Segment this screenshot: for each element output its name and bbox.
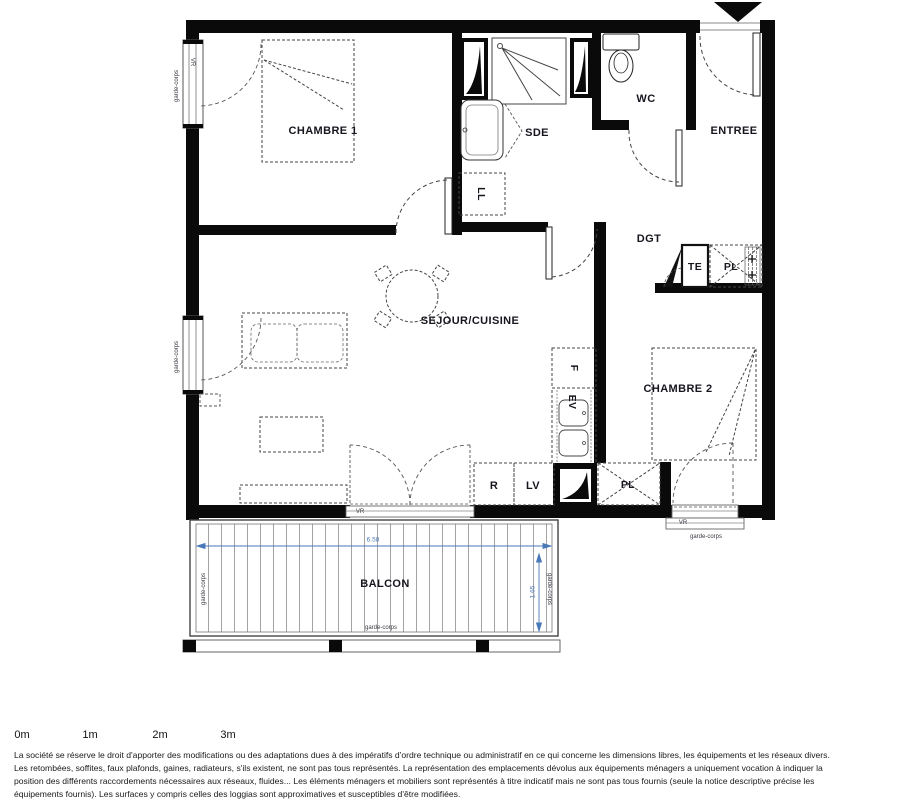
scale-label-1m: 1m bbox=[82, 729, 97, 741]
sde-door bbox=[546, 227, 597, 279]
kitchen-duct-box bbox=[553, 463, 597, 507]
garde-corps-label-balcony-left: garde-corps bbox=[201, 573, 207, 605]
room-label-sde: SDE bbox=[525, 127, 549, 139]
chambre1-window bbox=[183, 40, 261, 128]
disclaimer-line-2: Les retombées, soffites, faux plafonds, … bbox=[14, 762, 823, 775]
chambre1-bed bbox=[262, 40, 354, 162]
garde-corps-label-balcony-bottom: garde-corps bbox=[365, 625, 397, 631]
duct-box-left bbox=[460, 38, 488, 100]
shower bbox=[492, 38, 566, 104]
fixture-label-fridge: F bbox=[568, 365, 580, 372]
garde-corps-label-chambre1: garde-corps bbox=[174, 70, 180, 102]
chambre2-window bbox=[666, 505, 744, 529]
garde-corps-label-sejour: garde-corps bbox=[174, 341, 180, 373]
room-label-wc: WC bbox=[636, 93, 655, 105]
fixture-label-r: R bbox=[490, 480, 498, 492]
balcony-depth-dimension: 1.65 bbox=[530, 586, 537, 599]
disclaimer-line-4: équipements fournis). Les surfaces y com… bbox=[14, 788, 460, 800]
room-label-chambre1: CHAMBRE 1 bbox=[289, 125, 358, 137]
fixture-label-te: TE bbox=[688, 261, 702, 273]
duct-box-right bbox=[570, 38, 592, 98]
room-label-dgt: DGT bbox=[637, 233, 661, 245]
disclaimer-line-3: position des différents raccordements né… bbox=[14, 775, 814, 788]
wc-door bbox=[629, 130, 682, 186]
vr-label-chambre1-window: VR bbox=[189, 58, 195, 66]
fixture-label-pl-upper: PL bbox=[724, 261, 738, 273]
fixture-label-lv: LV bbox=[526, 480, 540, 492]
room-label-chambre2: CHAMBRE 2 bbox=[644, 383, 713, 395]
sejour-window bbox=[183, 316, 261, 406]
french-door bbox=[346, 445, 474, 517]
garde-corps-label-balcony-right: garde-corps bbox=[546, 573, 552, 605]
vr-label-sejour-door: VR bbox=[356, 509, 364, 515]
room-label-entree: ENTREE bbox=[710, 125, 757, 137]
chambre2-bed bbox=[652, 348, 756, 460]
sofa bbox=[242, 313, 347, 368]
scale-label-0m: 0m bbox=[14, 729, 29, 741]
fixture-label-sink: EV bbox=[566, 395, 578, 410]
entrance-door bbox=[700, 23, 760, 96]
garde-corps-label-chambre2: garde-corps bbox=[690, 534, 722, 540]
technical-strip bbox=[745, 247, 760, 285]
chambre1-door bbox=[396, 178, 452, 234]
coffee-table bbox=[260, 417, 323, 452]
washbasin bbox=[461, 100, 522, 160]
fixture-label-pl-lower: PL bbox=[621, 479, 635, 491]
tv-bench bbox=[240, 485, 347, 503]
fixture-label-ll: LL bbox=[475, 187, 487, 201]
chambre2-door bbox=[673, 443, 733, 503]
disclaimer-line-1: La société se réserve le droit d'apporte… bbox=[14, 749, 830, 762]
vr-label-chambre2-window: VR bbox=[679, 520, 687, 526]
entry-arrow-icon bbox=[714, 2, 762, 22]
balcony-width-dimension: 6.58 bbox=[367, 537, 380, 544]
scale-label-2m: 2m bbox=[152, 729, 167, 741]
floor-plan-drawing bbox=[0, 0, 920, 700]
room-label-balcon: BALCON bbox=[360, 578, 409, 590]
toilet bbox=[603, 34, 639, 82]
scale-label-3m: 3m bbox=[220, 729, 235, 741]
floor-plan-page: CHAMBRE 1 SDE WC ENTREE DGT SEJOUR/CUISI… bbox=[0, 0, 920, 800]
room-label-sejour: SEJOUR/CUISINE bbox=[421, 315, 520, 327]
